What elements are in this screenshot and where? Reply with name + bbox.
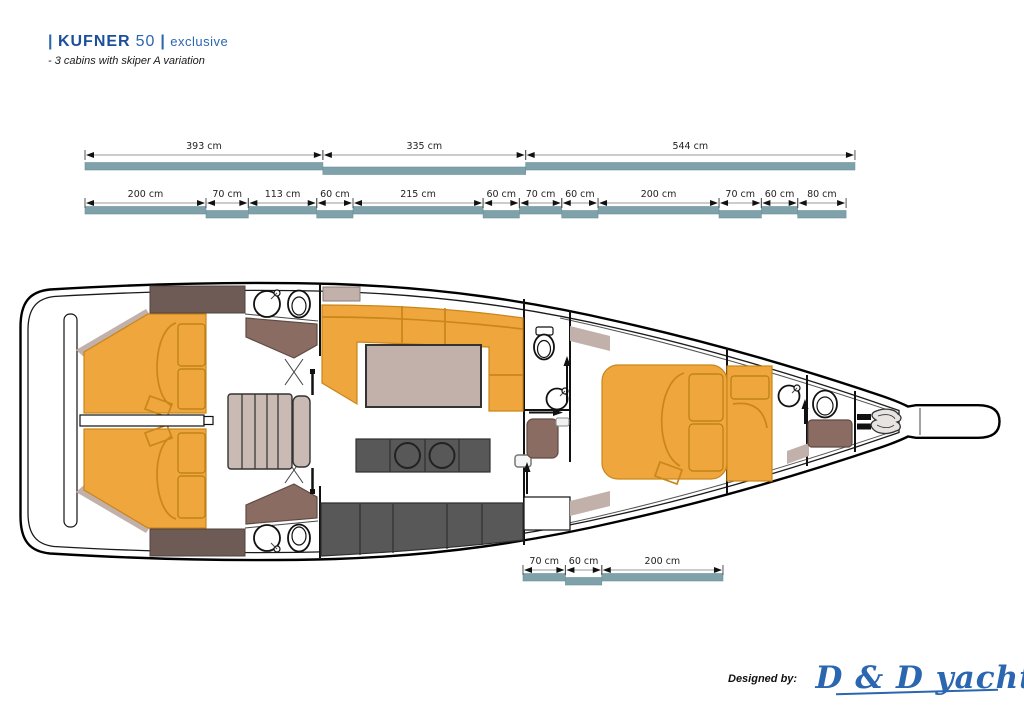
dimension-bar bbox=[323, 167, 526, 175]
dimension-label: 60 cm bbox=[486, 189, 516, 200]
dimension-arrow-right bbox=[517, 152, 525, 158]
stair-top-tread bbox=[293, 396, 310, 467]
toilet-bowl bbox=[292, 527, 306, 545]
salon-table bbox=[366, 345, 481, 407]
pillow bbox=[178, 476, 205, 518]
dimension-bar bbox=[798, 211, 846, 219]
dimension-bar bbox=[602, 574, 723, 582]
dimension-bar bbox=[719, 211, 761, 219]
galley-counter bbox=[321, 503, 523, 556]
dimension-bar bbox=[526, 163, 855, 171]
dimension-arrow-right bbox=[789, 200, 797, 206]
dimension-arrow-right bbox=[837, 200, 845, 206]
dimension-label: 60 cm bbox=[565, 189, 595, 200]
dimension-arrow-right bbox=[710, 200, 718, 206]
dimension-arrow-left bbox=[762, 200, 770, 206]
toilet-bowl bbox=[538, 341, 551, 358]
galley-island bbox=[356, 439, 490, 472]
dimension-arrow-left bbox=[324, 152, 332, 158]
page: { "header": { "separator": "|", "brand":… bbox=[0, 0, 1024, 722]
dimension-bar bbox=[85, 207, 206, 215]
dimension-bar bbox=[483, 211, 519, 219]
dimension-arrow-left bbox=[86, 200, 94, 206]
dimension-row-bottom: 70 cm60 cm200 cm bbox=[523, 556, 723, 585]
dimension-arrow-right bbox=[752, 200, 760, 206]
dimension-arrow-left bbox=[86, 152, 94, 158]
dimension-arrow-left bbox=[563, 200, 571, 206]
dimension-arrow-left bbox=[720, 200, 728, 206]
dimension-label: 200 cm bbox=[645, 556, 681, 567]
dimension-arrow-right bbox=[714, 567, 722, 573]
dimension-arrow-right bbox=[308, 200, 316, 206]
shower-seat bbox=[527, 419, 558, 458]
dimension-label: 70 cm bbox=[526, 189, 556, 200]
dimension-row-detail: 200 cm70 cm113 cm60 cm215 cm60 cm70 cm60… bbox=[85, 189, 846, 218]
dimension-label: 60 cm bbox=[765, 189, 795, 200]
dimension-arrow-left bbox=[520, 200, 528, 206]
footer: Designed by: D & D yachts bbox=[728, 660, 1024, 696]
dimension-label: 215 cm bbox=[400, 189, 436, 200]
dimension-bar bbox=[353, 207, 483, 215]
windlass bbox=[871, 409, 901, 433]
dimension-bar bbox=[598, 207, 719, 215]
sideboard bbox=[323, 287, 360, 301]
dimension-arrow-left bbox=[318, 200, 326, 206]
pillow bbox=[731, 376, 769, 399]
door-post bbox=[310, 489, 315, 494]
dimension-label: 200 cm bbox=[641, 189, 677, 200]
floor-plan-canvas: 393 cm335 cm544 cm 200 cm70 cm113 cm60 c… bbox=[0, 0, 1024, 722]
dimension-bar bbox=[562, 211, 598, 219]
yacht-floor-plan bbox=[21, 283, 1000, 560]
dimension-arrow-right bbox=[314, 152, 322, 158]
dimension-label: 113 cm bbox=[265, 189, 301, 200]
dimension-bar bbox=[317, 211, 353, 219]
chain-stopper bbox=[857, 424, 871, 430]
dimension-label: 60 cm bbox=[320, 189, 350, 200]
toilet-bowl bbox=[292, 297, 306, 315]
designed-by-label: Designed by: bbox=[728, 673, 797, 685]
dimension-arrow-right bbox=[197, 200, 205, 206]
dimension-label: 393 cm bbox=[186, 141, 222, 152]
engine-hatch-latch bbox=[204, 417, 213, 425]
pillow bbox=[178, 369, 205, 409]
dimension-label: 70 cm bbox=[212, 189, 242, 200]
dimension-arrow-right bbox=[556, 567, 564, 573]
toilet-bowl bbox=[817, 397, 833, 415]
dimension-bar bbox=[565, 578, 601, 586]
wardrobe-port bbox=[150, 286, 245, 313]
dimension-arrow-left bbox=[354, 200, 362, 206]
stair-treads bbox=[228, 394, 292, 469]
dimension-arrow-right bbox=[239, 200, 247, 206]
dimension-arrow-left bbox=[484, 200, 492, 206]
locker bbox=[524, 497, 570, 530]
pillow bbox=[689, 424, 723, 471]
dimension-label: 70 cm bbox=[529, 556, 559, 567]
dimension-bar bbox=[85, 163, 323, 171]
dimension-label: 200 cm bbox=[128, 189, 164, 200]
dimension-arrow-left bbox=[207, 200, 215, 206]
dimension-label: 335 cm bbox=[406, 141, 442, 152]
chain-stopper bbox=[857, 414, 871, 420]
dimension-label: 80 cm bbox=[807, 189, 837, 200]
pillow bbox=[178, 324, 205, 366]
dimension-bar bbox=[519, 207, 561, 215]
dimension-arrow-right bbox=[846, 152, 854, 158]
engine-hatch bbox=[80, 415, 204, 426]
dimension-bar bbox=[523, 574, 565, 582]
door-handle bbox=[556, 418, 569, 426]
pillow bbox=[689, 374, 723, 421]
dimension-label: 70 cm bbox=[725, 189, 755, 200]
dimension-arrow-right bbox=[593, 567, 601, 573]
dimension-bar bbox=[206, 211, 248, 219]
dimension-arrow-left bbox=[249, 200, 257, 206]
dimension-arrow-right bbox=[589, 200, 597, 206]
pillow bbox=[178, 433, 205, 473]
dimension-arrow-left bbox=[566, 567, 574, 573]
shower-pan bbox=[808, 420, 852, 447]
dimension-arrow-right bbox=[474, 200, 482, 206]
dimension-label: 544 cm bbox=[672, 141, 708, 152]
dimension-bar bbox=[761, 207, 797, 215]
door-post bbox=[310, 369, 315, 374]
dimension-arrow-right bbox=[553, 200, 561, 206]
dimension-arrow-right bbox=[344, 200, 352, 206]
transom-step bbox=[64, 314, 77, 527]
dimension-row-main: 393 cm335 cm544 cm bbox=[85, 141, 855, 175]
dimension-arrow-left bbox=[799, 200, 807, 206]
dimension-arrow-left bbox=[524, 567, 532, 573]
dimension-arrow-left bbox=[603, 567, 611, 573]
dimension-arrow-left bbox=[527, 152, 535, 158]
wardrobe-starboard bbox=[150, 529, 245, 556]
dimension-bar bbox=[248, 207, 316, 215]
dimension-label: 60 cm bbox=[569, 556, 599, 567]
dimension-arrow-right bbox=[510, 200, 518, 206]
dimension-arrow-left bbox=[599, 200, 607, 206]
